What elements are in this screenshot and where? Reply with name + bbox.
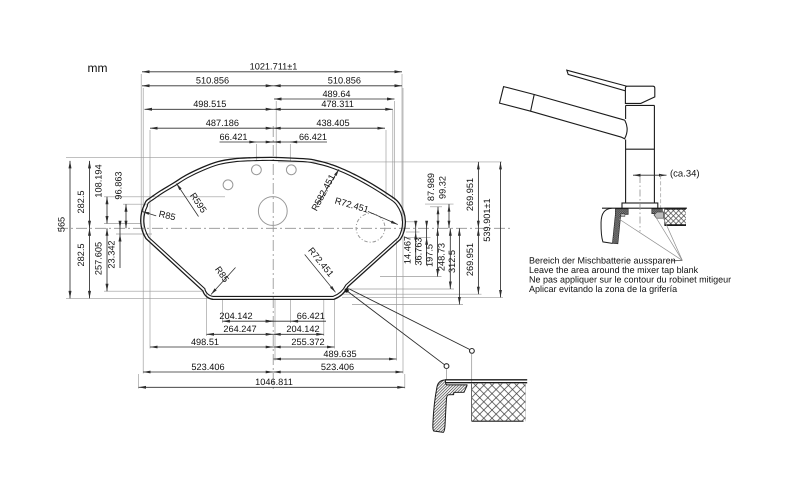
svg-text:523.406: 523.406 [191,362,224,372]
svg-text:96.863: 96.863 [114,171,124,199]
svg-text:87.989: 87.989 [426,173,436,201]
svg-text:478.311: 478.311 [321,99,354,109]
svg-text:1021.711±1: 1021.711±1 [250,62,298,72]
svg-text:66.421: 66.421 [219,132,247,142]
svg-text:487.186: 487.186 [206,118,239,128]
svg-text:257.605: 257.605 [94,242,104,275]
svg-text:36.763: 36.763 [414,237,424,265]
svg-text:197.5: 197.5 [425,244,435,267]
svg-text:66.421: 66.421 [297,311,325,321]
svg-text:Ne pas appliquer sur le contou: Ne pas appliquer sur le contour du robin… [529,274,731,284]
svg-text:23.342: 23.342 [107,240,117,268]
svg-text:1046.811: 1046.811 [255,377,293,387]
svg-text:523.406: 523.406 [321,362,354,372]
svg-text:108.194: 108.194 [94,164,104,197]
svg-text:Leave the area around the mixe: Leave the area around the mixer tap blan… [529,265,699,275]
svg-text:438.405: 438.405 [316,118,349,128]
svg-text:14.467: 14.467 [403,236,413,264]
svg-text:204.142: 204.142 [219,311,252,321]
svg-text:510.856: 510.856 [328,76,361,86]
svg-text:510.856: 510.856 [196,76,229,86]
svg-text:489.635: 489.635 [323,349,356,359]
svg-text:269.951: 269.951 [465,178,475,211]
svg-text:Aplicar evitando la zona de la: Aplicar evitando la zona de la grifería [529,284,677,294]
svg-text:mm: mm [88,61,108,75]
svg-text:539.901±1: 539.901±1 [482,198,492,241]
svg-text:565: 565 [57,217,67,232]
svg-text:282.5: 282.5 [76,244,86,267]
svg-text:(ca.34): (ca.34) [670,169,700,180]
svg-text:269.951: 269.951 [465,243,475,276]
svg-text:489.64: 489.64 [322,89,350,99]
svg-text:282.5: 282.5 [76,191,86,214]
svg-text:312.5: 312.5 [447,250,457,273]
svg-text:264.247: 264.247 [223,324,256,334]
svg-text:498.51: 498.51 [191,337,219,347]
svg-text:498.515: 498.515 [193,99,226,109]
svg-text:204.142: 204.142 [286,324,319,334]
svg-text:99.32: 99.32 [438,176,448,199]
svg-text:Bereich der Mischbatterie auss: Bereich der Mischbatterie aussparen [529,255,676,265]
svg-text:255.372: 255.372 [291,337,324,347]
svg-text:248.73: 248.73 [437,243,447,271]
svg-text:66.421: 66.421 [299,132,327,142]
